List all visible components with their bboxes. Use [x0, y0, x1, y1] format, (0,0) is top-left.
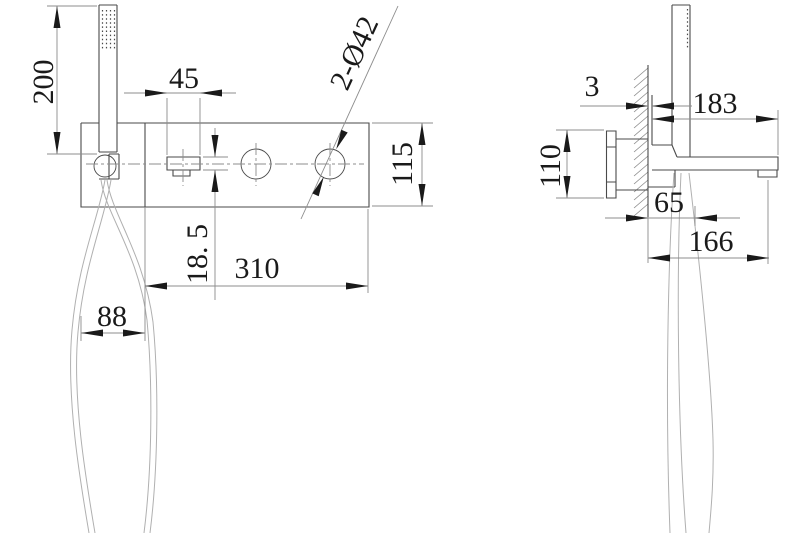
- dim-panel-height: 115: [372, 123, 433, 206]
- dim-wall-plate-thickness: 3: [580, 70, 692, 110]
- dim-label: 45: [169, 62, 199, 95]
- front-view: 200 45 2-Ø42 115 18. 5: [27, 5, 433, 533]
- dim-arrowheads: [312, 130, 347, 197]
- mixer-panel-outline: [81, 5, 369, 207]
- dim-arrowheads: [212, 135, 219, 192]
- dim-label: 18. 5: [181, 224, 214, 284]
- dim-label: 200: [27, 60, 60, 105]
- dim-handshower-height: 200: [27, 6, 97, 154]
- dim-valve-holes: 2-Ø42: [301, 6, 398, 219]
- dim-panel-width: 310: [145, 207, 368, 341]
- dim-arrowheads: [626, 103, 674, 110]
- handshower-spray-face: [103, 10, 115, 51]
- side-view: 3 183 110 65 166: [534, 5, 778, 533]
- dim-label: 110: [534, 144, 567, 188]
- dim-label: 166: [689, 225, 734, 258]
- dim-label: 310: [235, 252, 280, 285]
- dim-handle-depth: 18. 5: [181, 128, 228, 300]
- dim-inwall-body-height: 110: [534, 130, 604, 198]
- dim-hose-bay-width: 88: [81, 300, 145, 341]
- dim-lines: [124, 93, 236, 155]
- dim-label: 88: [97, 300, 127, 333]
- dim-label: 3: [585, 70, 600, 103]
- dim-handle-width: 45: [124, 62, 236, 155]
- front-shower-hose: [71, 180, 157, 533]
- dim-label: 115: [386, 142, 419, 186]
- mixer-installation-drawing: 200 45 2-Ø42 115 18. 5: [0, 0, 800, 533]
- handshower-holder: [94, 155, 116, 177]
- dim-label: 183: [693, 87, 738, 120]
- technical-drawing-page: 200 45 2-Ø42 115 18. 5: [0, 0, 800, 533]
- dim-label: 65: [654, 186, 684, 219]
- wall-hatching: [634, 68, 648, 216]
